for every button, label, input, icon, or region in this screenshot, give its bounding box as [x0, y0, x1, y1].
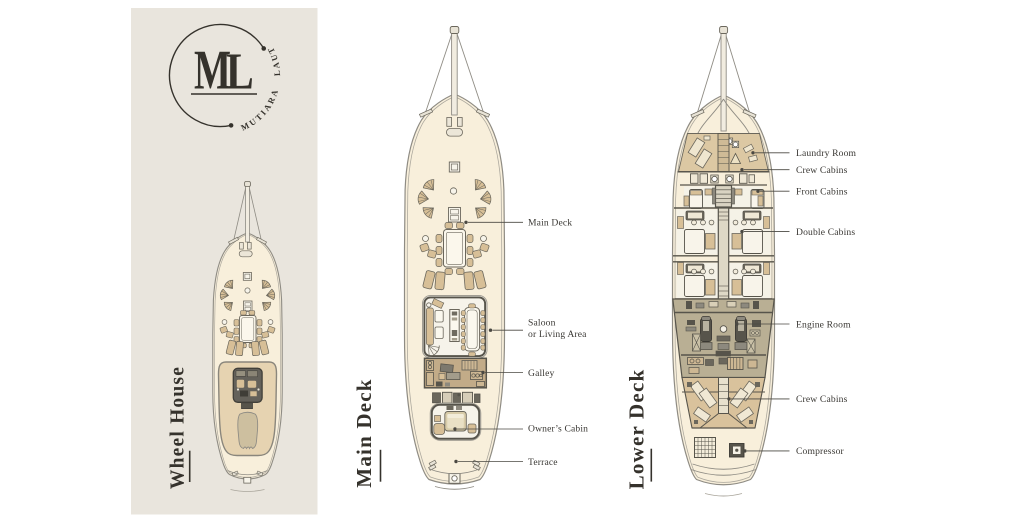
svg-text:Laundry Room: Laundry Room — [796, 148, 857, 159]
svg-text:Terrace: Terrace — [528, 457, 558, 468]
svg-text:Crew Cabins: Crew Cabins — [796, 394, 848, 405]
svg-text:Double Cabins: Double Cabins — [796, 227, 855, 238]
svg-text:Crew Cabins: Crew Cabins — [796, 165, 848, 176]
svg-text:Galley: Galley — [528, 368, 555, 379]
svg-text:L: L — [226, 43, 254, 100]
svg-text:Wheel House: Wheel House — [168, 366, 189, 489]
svg-text:Lower Deck: Lower Deck — [625, 369, 649, 490]
svg-text:Compressor: Compressor — [796, 446, 845, 457]
svg-text:Front Cabins: Front Cabins — [796, 187, 848, 198]
svg-text:Owner’s Cabin: Owner’s Cabin — [528, 423, 588, 434]
svg-text:Saloonor Living Area: Saloonor Living Area — [528, 318, 587, 341]
svg-text:Main Deck: Main Deck — [528, 218, 572, 229]
svg-text:Main Deck: Main Deck — [352, 378, 376, 487]
svg-text:Engine Room: Engine Room — [796, 319, 851, 330]
